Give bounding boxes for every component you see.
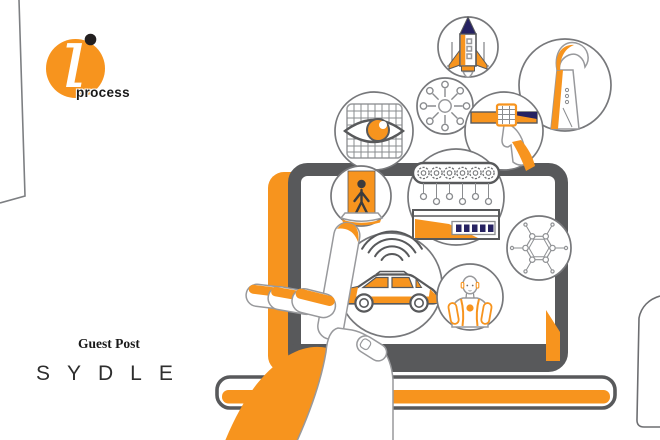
sydle-brand: SYDLE (36, 362, 190, 386)
eye-highlight (379, 121, 387, 129)
guest-post-label: Guest Post (78, 336, 140, 352)
hero-graphic: ı (0, 0, 660, 440)
logo-wordmark: process (76, 85, 130, 100)
molecule-network-icon (507, 216, 571, 280)
person-scanner-icon (331, 166, 391, 226)
humanoid-robot-icon (437, 264, 503, 330)
page-corner-line-left (0, 0, 25, 203)
page-corner-line-right (637, 296, 660, 427)
rocket-icon (438, 17, 498, 77)
factory-automation-icon (408, 149, 504, 245)
vision-eye-icon (335, 92, 413, 170)
